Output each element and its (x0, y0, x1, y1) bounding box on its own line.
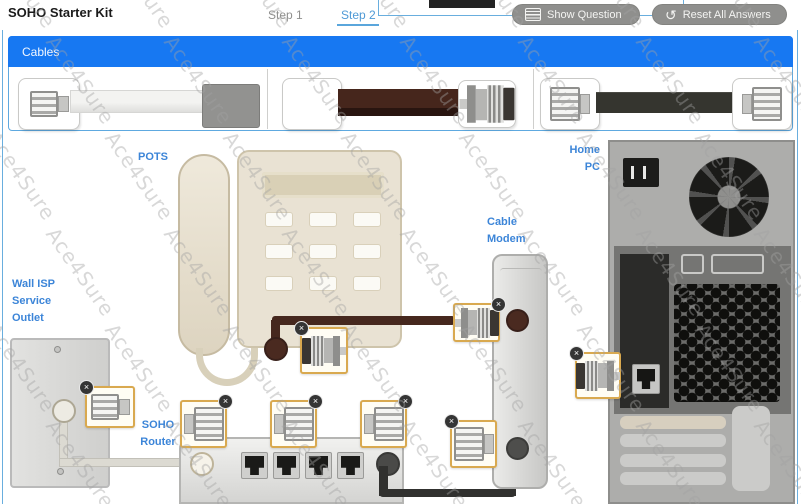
phone-coax-end[interactable] (264, 337, 288, 361)
cable-modem-label: CableModem (487, 214, 526, 248)
remove-connector-badge[interactable]: × (491, 297, 506, 312)
pc-fan (689, 157, 769, 237)
telephone-cable (70, 90, 204, 113)
reset-all-answers-button[interactable]: ↺ Reset All Answers (652, 4, 787, 25)
rj45-connector-icon (364, 407, 404, 441)
coax-cable (338, 89, 460, 116)
rj45-connector-icon (550, 87, 590, 121)
f-connector-icon (302, 336, 346, 366)
pc-slot-cover (620, 454, 726, 467)
connector-slot-wall-outlet[interactable]: × (85, 386, 135, 428)
cables-divider (533, 69, 534, 129)
telephone-cable-run (59, 458, 194, 467)
reset-icon: ↺ (665, 8, 677, 22)
pc-port-small (681, 254, 704, 274)
remove-connector-badge[interactable]: × (398, 394, 413, 409)
pc-io-panel (614, 246, 791, 414)
content-border-right (797, 30, 798, 504)
rj45-connector-icon (454, 427, 494, 461)
rj45-connector-icon (91, 394, 130, 420)
connector-slot-router-wan[interactable]: × (360, 400, 407, 448)
pc-power-inlet (623, 158, 659, 187)
lan-port-2[interactable] (273, 452, 300, 479)
ethernet-cable-rj45-connector-left[interactable] (540, 78, 600, 130)
active-tab-underline (337, 24, 379, 26)
ethernet-cable (596, 92, 738, 113)
telephone-cable-run (59, 421, 68, 463)
f-connector-icon (460, 85, 515, 123)
remove-connector-badge[interactable]: × (444, 414, 459, 429)
wall-plate-screw (54, 346, 61, 353)
wall-plate-screw (57, 468, 64, 475)
home-pc-label: HomePC (560, 142, 600, 176)
modem-ethernet-port[interactable] (506, 437, 529, 460)
rj45-connector-icon (742, 87, 782, 121)
pc-slot-cover (620, 472, 726, 485)
ethernet-cable-run (379, 489, 516, 497)
coax-cable-empty-slot[interactable] (282, 78, 342, 130)
remove-connector-badge[interactable]: × (218, 394, 233, 409)
f-connector-icon (576, 361, 620, 391)
phone-handset-cord (196, 348, 258, 386)
soho-router-label: SOHORouter (134, 417, 182, 451)
connector-slot-phone-coax[interactable]: × (300, 327, 348, 374)
watermark-text: Ace4Sure (0, 127, 61, 225)
telephone-cable-gray-plug[interactable] (202, 84, 260, 128)
coax-cable-f-connector[interactable] (458, 80, 516, 128)
pc-ethernet-jack[interactable] (632, 364, 660, 394)
remove-connector-badge[interactable]: × (294, 321, 309, 336)
show-question-button[interactable]: Show Question (512, 4, 640, 25)
content-border-left (2, 30, 3, 504)
phone-keypad (265, 212, 381, 292)
modem-coax-port[interactable] (506, 309, 529, 332)
show-question-label: Show Question (547, 9, 622, 21)
rj45-connector-icon (184, 407, 224, 441)
remove-connector-badge[interactable]: × (308, 394, 323, 409)
lan-port-4[interactable] (337, 452, 364, 479)
wall-outlet-jack[interactable] (52, 399, 76, 423)
f-connector-icon (455, 308, 499, 338)
remove-connector-badge[interactable]: × (79, 380, 94, 395)
connector-slot-router-lan[interactable]: × (270, 400, 317, 448)
pc-slot-cover (620, 434, 726, 447)
router-phone-service-port[interactable] (190, 452, 214, 476)
reset-all-label: Reset All Answers (683, 9, 771, 21)
phone-display (262, 172, 384, 198)
connector-slot-modem-ethernet[interactable]: × (450, 420, 497, 468)
phone-handset (178, 154, 230, 356)
pc-side-plate (732, 406, 770, 491)
soho-starter-kit-window: SOHO Starter Kit Step 1 Step 2 Show Ques… (0, 0, 801, 504)
pc-hex-vent (674, 284, 780, 402)
router-lan-ports (241, 452, 364, 479)
pc-port-wide (711, 254, 764, 274)
lan-port-3[interactable] (305, 452, 332, 479)
remove-connector-badge[interactable]: × (569, 346, 584, 361)
watermark-text: Ace4Sure (100, 127, 179, 225)
page-title: SOHO Starter Kit (8, 5, 113, 20)
connector-slot-pc-ethernet[interactable]: × (575, 352, 621, 399)
cables-panel-title: Cables (22, 45, 59, 59)
connector-slot-router-phone[interactable]: × (180, 400, 227, 448)
rj11-connector-icon (30, 91, 69, 117)
cutoff-cable-image (429, 0, 495, 8)
tab-step-2[interactable]: Step 2 (341, 8, 376, 22)
rj45-connector-icon (274, 407, 314, 441)
cables-divider (267, 69, 268, 129)
watermark-text: Ace4Sure (454, 127, 533, 225)
home-pc-tower (608, 140, 795, 504)
pc-slot-cover (620, 416, 726, 429)
pots-label: POTS (138, 149, 168, 166)
connector-slot-modem-coax[interactable]: × (453, 303, 500, 342)
wall-outlet-label: Wall ISPServiceOutlet (12, 276, 55, 327)
ethernet-cable-rj45-connector-right[interactable] (732, 78, 792, 130)
tab-step-1[interactable]: Step 1 (268, 8, 303, 22)
cables-panel-header (8, 36, 793, 67)
lan-port-1[interactable] (241, 452, 268, 479)
question-list-icon (525, 8, 541, 21)
